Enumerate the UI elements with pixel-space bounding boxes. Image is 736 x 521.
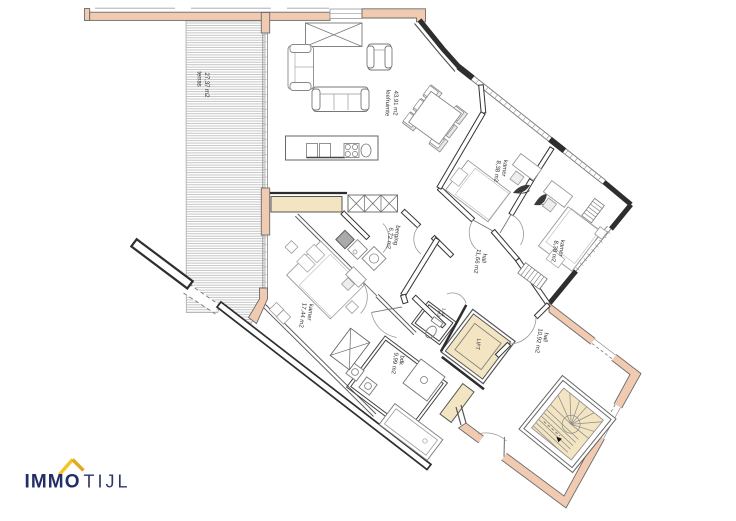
svg-text:terras: terras — [196, 71, 202, 86]
svg-text:IMMO: IMMO — [25, 472, 81, 493]
svg-text:27,37 m2: 27,37 m2 — [203, 72, 209, 98]
svg-text:43,91 m2: 43,91 m2 — [392, 90, 399, 116]
svg-text:m2: m2 — [436, 310, 442, 317]
svg-text:TIJL: TIJL — [84, 472, 131, 492]
svg-text:leefruimte: leefruimte — [384, 90, 391, 117]
